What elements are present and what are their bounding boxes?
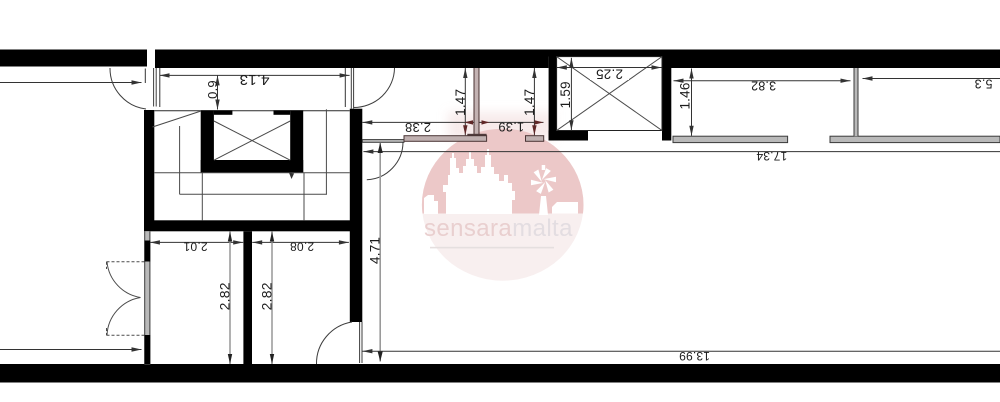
- svg-text:1.59: 1.59: [558, 81, 573, 108]
- svg-text:0.9: 0.9: [205, 80, 220, 99]
- svg-text:2.82: 2.82: [217, 282, 233, 310]
- svg-text:4.13: 4.13: [240, 71, 270, 88]
- svg-text:1.47: 1.47: [522, 89, 537, 116]
- svg-text:2.08: 2.08: [290, 240, 314, 254]
- svg-text:3.82: 3.82: [751, 78, 776, 92]
- svg-text:1.47: 1.47: [453, 89, 468, 116]
- svg-text:1.46: 1.46: [678, 82, 693, 109]
- svg-text:sensaramalta: sensaramalta: [424, 215, 573, 242]
- svg-text:2.25: 2.25: [596, 66, 623, 81]
- svg-text:13.99: 13.99: [679, 349, 710, 363]
- svg-text:1.39: 1.39: [498, 120, 524, 135]
- svg-text:2.82: 2.82: [259, 282, 275, 310]
- svg-text:17.34: 17.34: [756, 149, 787, 163]
- svg-text:2.38: 2.38: [405, 120, 431, 135]
- svg-text:5.3: 5.3: [975, 76, 993, 90]
- svg-text:4.71: 4.71: [368, 237, 383, 264]
- svg-text:2.01: 2.01: [183, 240, 207, 254]
